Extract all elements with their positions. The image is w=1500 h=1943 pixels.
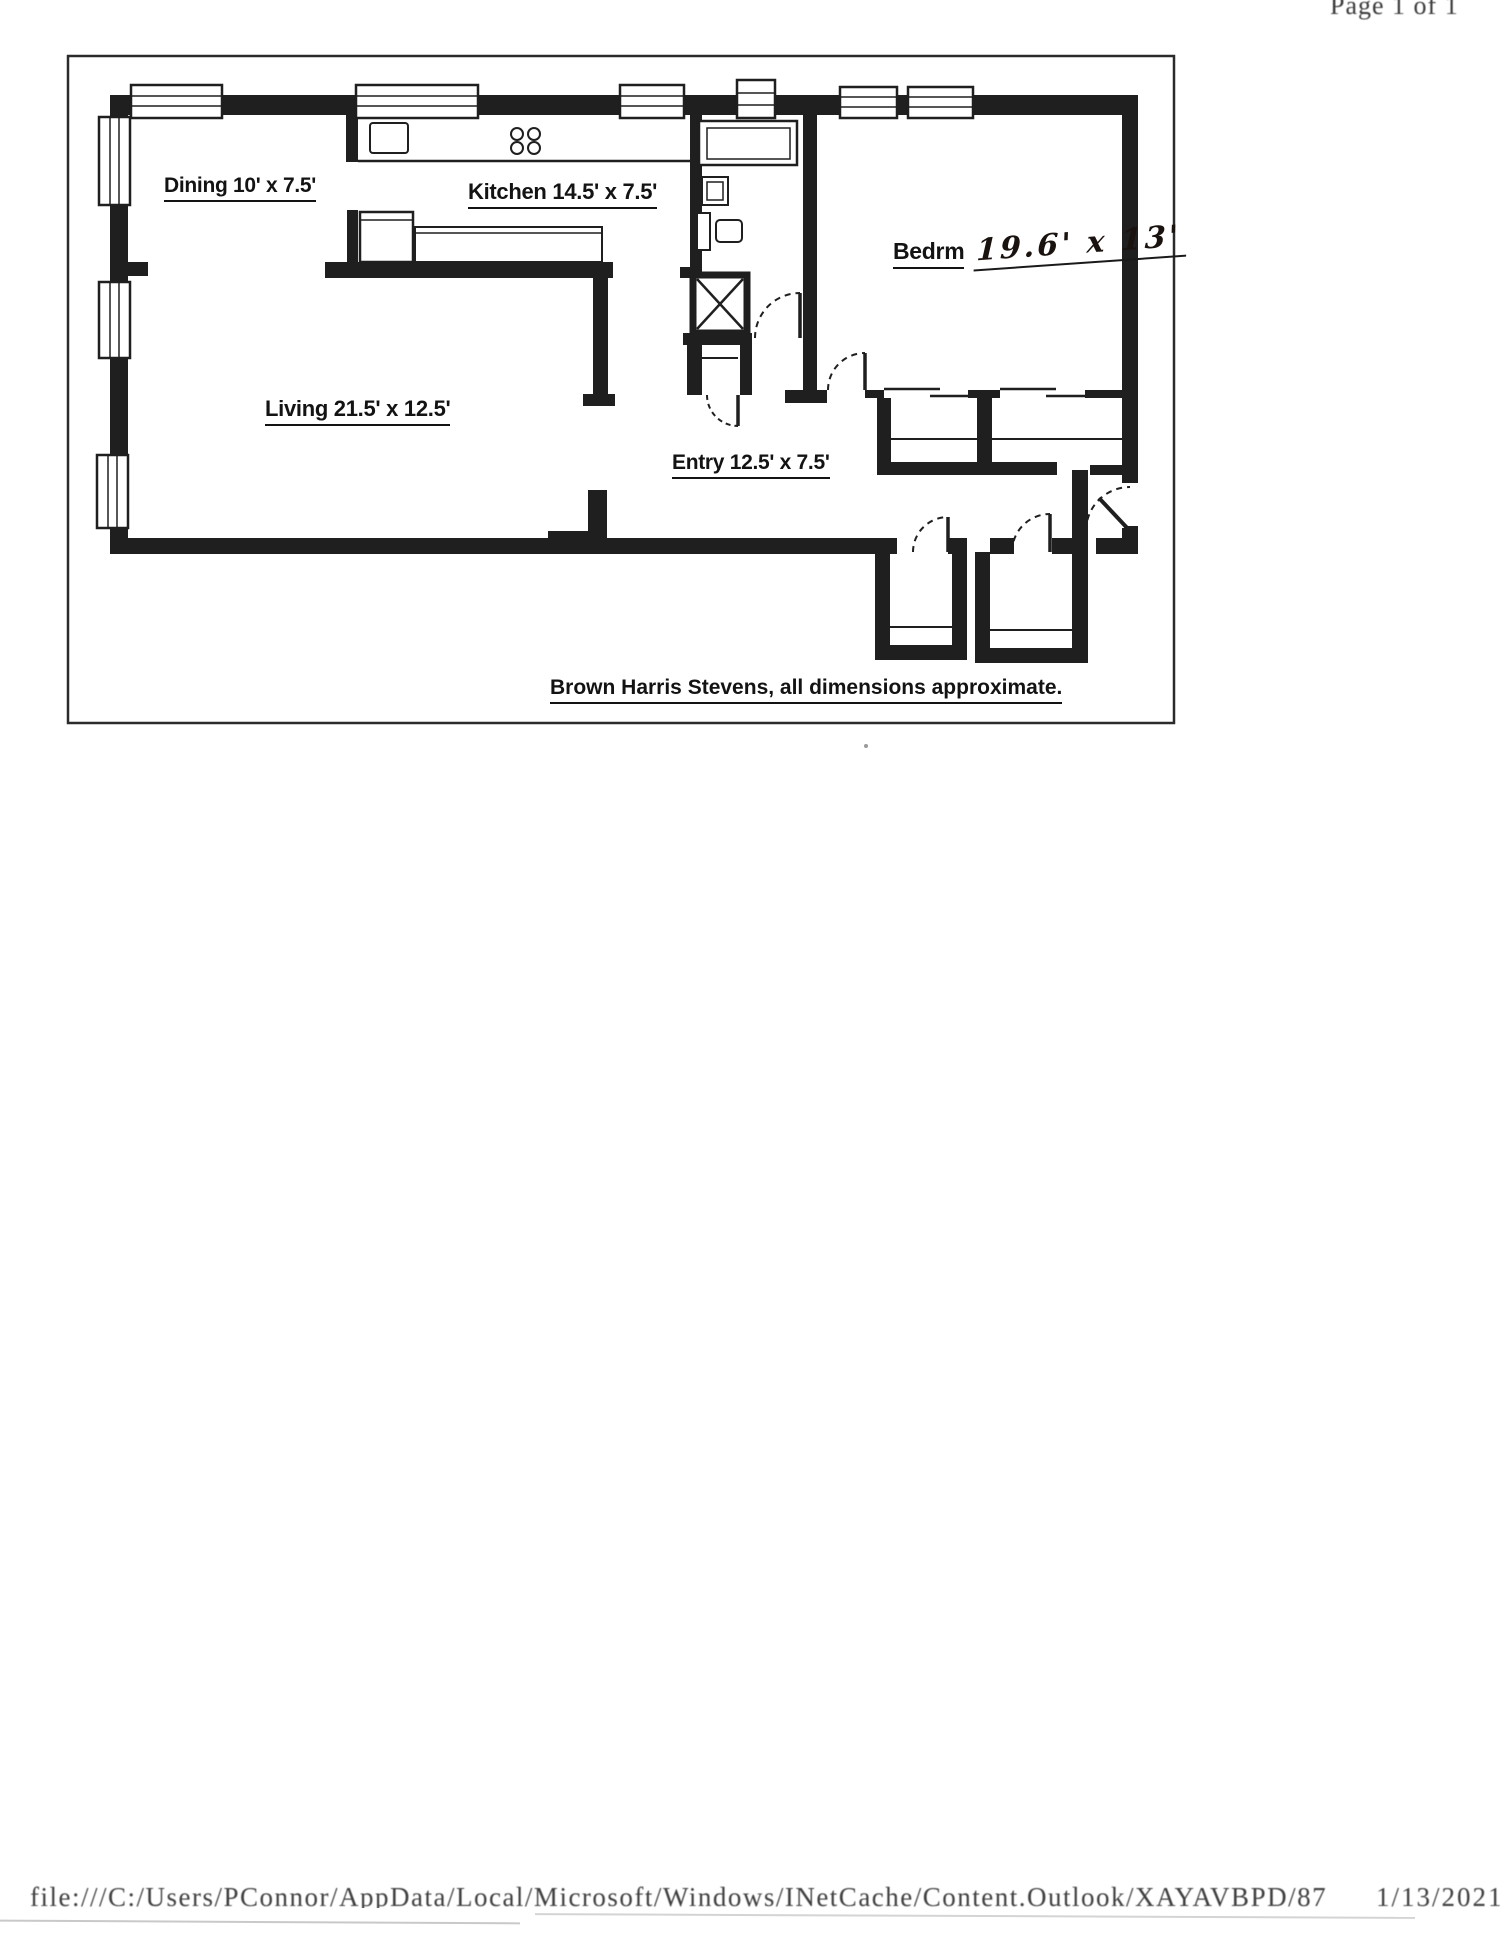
elevator-shaft: [693, 275, 747, 333]
room-label-kitchen: Kitchen 14.5' x 7.5': [468, 179, 657, 209]
toilet-tank: [697, 213, 710, 250]
floor-plan: Dining 10' x 7.5' Kitchen 14.5' x 7.5' B…: [0, 0, 1500, 800]
plan-caption: Brown Harris Stevens, all dimensions app…: [550, 676, 1062, 704]
window: [99, 282, 130, 358]
toilet-bowl: [716, 220, 742, 242]
window: [99, 117, 130, 205]
window: [131, 85, 222, 118]
closet-door: [913, 517, 948, 552]
shaft-closet-door: [707, 395, 738, 426]
closet-divider: [977, 398, 992, 462]
kitchen-peninsula-wall: [325, 262, 613, 278]
closet-details: [698, 358, 1122, 630]
scanned-floorplan-page: Page 1 of 1: [0, 0, 1500, 1943]
kitchen-sink: [370, 123, 408, 153]
entry-door: [1086, 487, 1130, 531]
room-label-bedroom: Bedrm19.6' x 13': [893, 232, 1187, 270]
window: [840, 87, 897, 118]
window: [356, 85, 478, 118]
window: [97, 455, 128, 528]
bedroom-label-printed: Bedrm: [893, 238, 964, 269]
bedroom-door: [828, 353, 865, 390]
living-entry-pier: [588, 490, 607, 554]
window: [737, 80, 775, 118]
room-label-living: Living 21.5' x 12.5': [265, 396, 450, 426]
window: [620, 85, 684, 118]
bathroom-fixtures: [697, 121, 797, 250]
living-hall-wall: [593, 278, 608, 398]
footer-file-path: file:///C:/Users/PConnor/AppData/Local/M…: [30, 1882, 1327, 1908]
stove-burners: [511, 128, 540, 154]
doors: [707, 293, 1130, 552]
footer-date: 1/13/2021: [1376, 1882, 1500, 1908]
window: [908, 87, 973, 118]
scan-artifact-line: [535, 1913, 1415, 1919]
scan-artifact-line: [0, 1920, 520, 1925]
bathroom-door: [755, 293, 800, 338]
closet-door: [1012, 514, 1050, 552]
room-label-entry: Entry 12.5' x 7.5': [672, 451, 830, 479]
footer: file:///C:/Users/PConnor/AppData/Local/M…: [0, 1882, 1500, 1908]
windows-left-wall: [97, 117, 130, 528]
scan-speck: [864, 744, 868, 748]
room-label-dining: Dining 10' x 7.5': [164, 174, 316, 202]
